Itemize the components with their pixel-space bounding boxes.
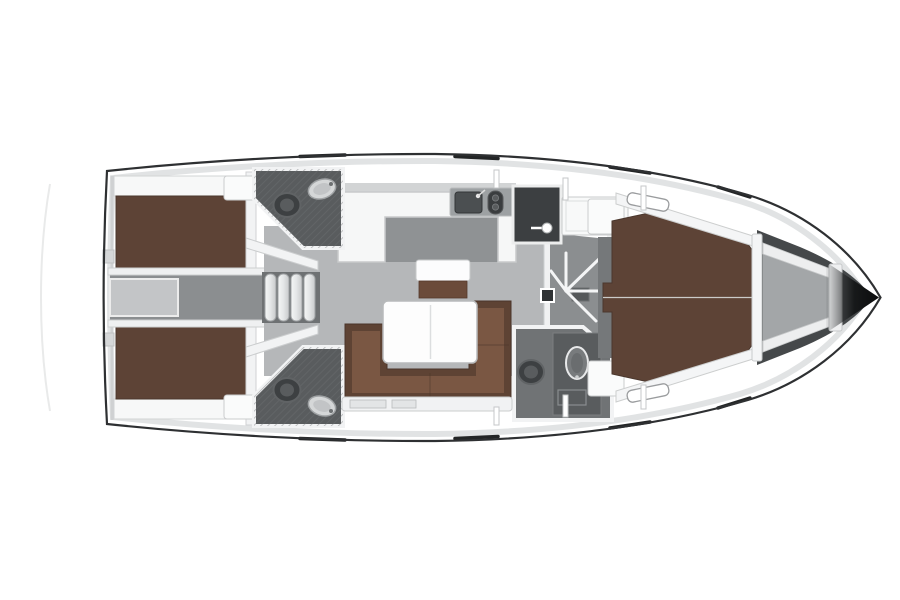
yacht-floorplan xyxy=(0,0,900,600)
forward-bulkhead xyxy=(752,234,762,361)
sofa-drawer xyxy=(392,400,416,408)
double-berth-starboard xyxy=(116,322,248,399)
step xyxy=(304,274,315,321)
bench-seat-cushion xyxy=(419,281,467,298)
wardrobe-locker xyxy=(513,186,561,243)
faucet-icon xyxy=(329,182,333,186)
galley-stove xyxy=(488,191,503,214)
washbasin-bowl xyxy=(571,353,583,373)
sofa-drawer xyxy=(350,400,386,408)
canvas xyxy=(0,0,900,600)
corridor-wall-top xyxy=(108,268,274,275)
toilet-bowl xyxy=(524,366,538,379)
step xyxy=(291,274,302,321)
engine-hatch xyxy=(110,279,178,316)
door-handle-icon xyxy=(542,223,552,233)
step xyxy=(278,274,289,321)
galley xyxy=(338,183,516,262)
stove-knob xyxy=(492,204,498,210)
aft-corridor xyxy=(108,268,274,327)
companionway-steps xyxy=(262,272,320,323)
toilet-bowl xyxy=(280,199,294,212)
faucet-icon xyxy=(329,409,333,413)
step xyxy=(265,274,276,321)
panel-box xyxy=(541,289,554,302)
galley-floor xyxy=(383,213,513,262)
drain-icon xyxy=(575,375,579,379)
toilet-bowl xyxy=(280,384,294,397)
double-berth-port xyxy=(116,196,248,273)
transom-arc xyxy=(41,184,50,411)
stove-knob xyxy=(492,195,498,201)
aft-cabin-starboard xyxy=(114,321,258,425)
bench-seat-top xyxy=(416,260,470,281)
aft-cabin-port xyxy=(114,172,258,274)
wardrobe xyxy=(513,186,561,243)
corridor-wall-bottom xyxy=(108,320,274,327)
